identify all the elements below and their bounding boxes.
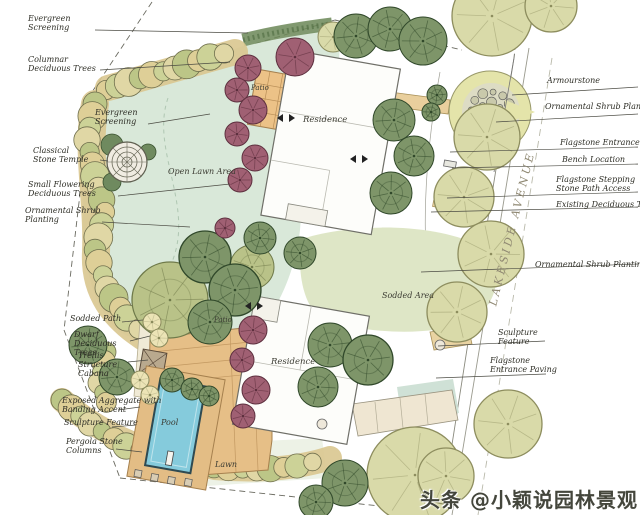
watermark: 头条 @小颖说园林景观	[420, 484, 638, 513]
annotation-trellis-structure-cabana: Trellis Structure Cabana	[78, 351, 142, 379]
annotation-armourstone: Armourstone	[547, 76, 600, 85]
annotation-ornamental-shrub-planting-topright: Ornamental Shrub Planting	[545, 102, 640, 111]
sculpture-left-shape	[317, 419, 327, 429]
plan-label-pool: Pool	[161, 419, 178, 428]
plan-label-residence-top: Residence	[303, 116, 347, 125]
plan-label-lawn: Lawn	[215, 461, 237, 470]
annotation-flagstone-entrance-paving-top: Flagstone Entrance Paving	[560, 138, 640, 147]
plan-label-sodded-area: Sodded Area	[382, 292, 434, 301]
annotation-existing-deciduous-trees: Existing Deciduous Trees	[556, 200, 640, 209]
plan-label-open-lawn-area: Open Lawn Area	[168, 168, 236, 177]
annotation-ornamental-shrub-planting-left: Ornamental Shrub Planting	[25, 206, 105, 224]
plan-label-residence-bottom: Residence	[271, 358, 315, 367]
annotation-sodded-path: Sodded Path	[70, 314, 121, 323]
annotation-exposed-aggregate: Exposed Aggregate with Banding Accent	[62, 396, 162, 414]
annotation-classical-stone-temple: Classical Stone Temple	[33, 146, 93, 164]
annotation-columnar-deciduous-trees: Columnar Deciduous Trees	[28, 55, 100, 73]
annotation-bench-location: Bench Location	[562, 155, 625, 164]
plan-label-patio-top: Patio	[251, 85, 269, 93]
annotation-sculpture-feature-right: Sculpture Feature	[498, 328, 554, 346]
plan-label-patio-bottom: Patio	[214, 317, 232, 325]
annotation-pergola-stone-columns: Pergola Stone Columns	[66, 437, 130, 455]
annotation-flagstone-stepping-stone-path: Flagstone Stepping Stone Path Access	[556, 175, 640, 193]
landscape-plan-page: Evergreen Screening Columnar Deciduous T…	[0, 0, 640, 515]
annotation-flagstone-entrance-paving-bottom: Flagstone Entrance Paving	[490, 356, 560, 374]
annotation-small-flowering-deciduous-trees: Small Flowering Deciduous Trees	[28, 180, 114, 198]
bench-shape	[444, 160, 457, 168]
sculpture-right-shape	[435, 340, 445, 350]
annotation-ornamental-shrub-planting-right: Ornamental Shrub Planting	[535, 260, 640, 269]
annotation-evergreen-screening-top: Evergreen Screening	[28, 14, 92, 32]
annotation-sculpture-feature-left: Sculpture Feature	[64, 418, 138, 427]
annotation-evergreen-screening-mid: Evergreen Screening	[95, 108, 159, 126]
